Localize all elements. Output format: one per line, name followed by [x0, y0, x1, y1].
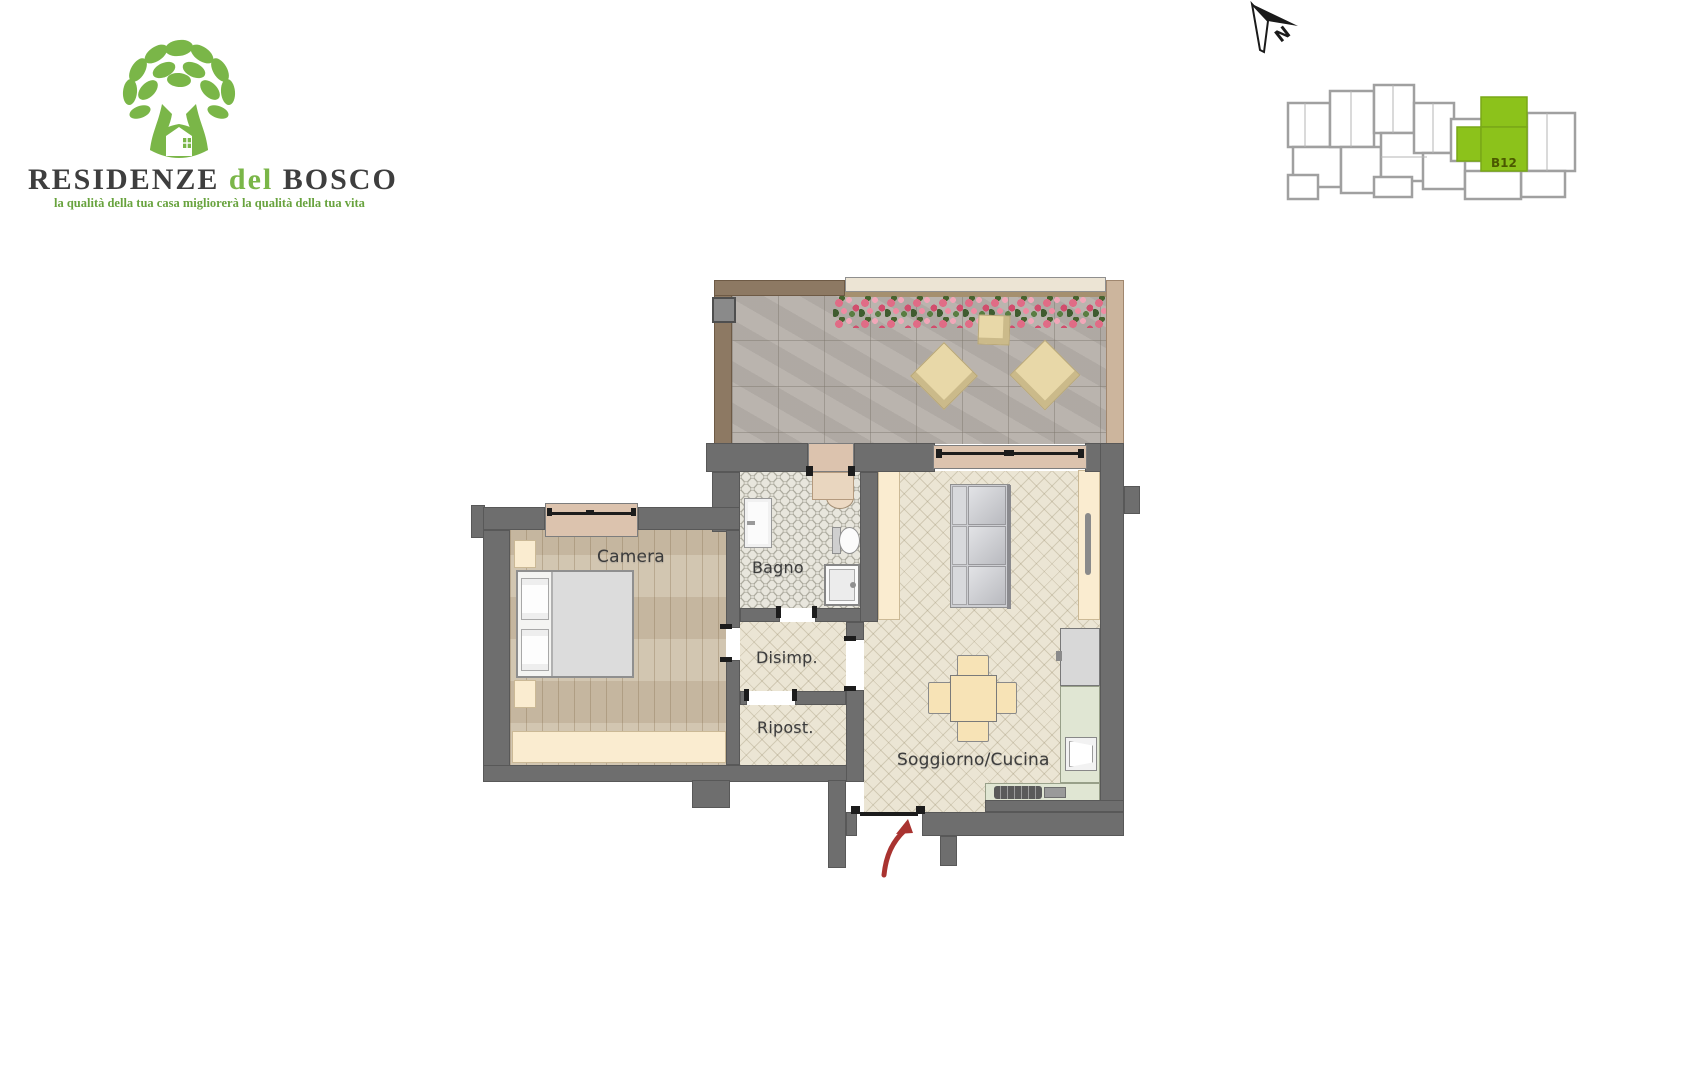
camera-window-cap-mid — [586, 510, 594, 515]
bagno-door-mark-left — [776, 606, 781, 618]
wall-hall-east-lower — [846, 690, 864, 782]
camera-door-mark-top — [720, 624, 732, 629]
living-door-mark-top — [844, 636, 856, 641]
living-window-cap-right — [1078, 449, 1084, 458]
shower-drain — [850, 582, 856, 588]
bed-blanket — [551, 572, 632, 676]
wall-bagno-south-left — [740, 608, 780, 622]
wall-bottom-step — [692, 780, 730, 808]
wall-camera-top-left — [483, 507, 545, 530]
wall-bagno-east — [860, 472, 878, 622]
wall-right — [1100, 443, 1124, 836]
dining-stool-left — [928, 682, 952, 714]
wall-entry-right-stub — [940, 836, 957, 866]
wall-hall-west-upper — [726, 530, 740, 628]
camera-wardrobe — [512, 731, 726, 763]
room-label-camera: Camera — [597, 547, 665, 567]
ripost-door-mark-right — [792, 689, 797, 701]
entrance-door-line — [860, 812, 918, 816]
sofa-back-rail — [1007, 485, 1011, 609]
bed — [516, 570, 634, 678]
site-unit-label: B12 — [1491, 156, 1517, 170]
kitchen-tall-cabinet — [1078, 470, 1100, 620]
nightstand-top — [514, 540, 536, 568]
north-arrow-icon: N — [1242, 0, 1312, 62]
shower — [824, 564, 860, 606]
cabinet-handle-bar — [1085, 513, 1091, 575]
wall-entry-left-stub — [828, 780, 846, 868]
brand-tagline: la qualità della tua casa migliorerà la … — [54, 196, 365, 211]
sofa-seat-1 — [952, 486, 967, 525]
sofa-cushion-1 — [968, 486, 1006, 525]
terrace-wall-top — [714, 280, 845, 296]
wall-camera-west — [483, 530, 510, 780]
kitchen-counter-right — [1060, 686, 1100, 783]
brand-name-part1: RESIDENZE — [28, 163, 219, 196]
room-label-ripost: Ripost. — [757, 718, 814, 737]
sofa-seat-2 — [952, 526, 967, 565]
room-label-disimp: Disimp. — [756, 648, 818, 667]
wall-camera-top-right — [638, 507, 740, 530]
terrace-pillar — [712, 297, 736, 323]
tree-logo-icon — [100, 32, 258, 164]
sofa-cushion-2 — [968, 526, 1006, 565]
fridge-handle — [1056, 651, 1062, 661]
cooktop-controls — [1044, 787, 1066, 798]
terrace-cushion-small — [977, 314, 1010, 345]
wall-kitchen-south — [985, 800, 1124, 812]
wall-living-south-right — [922, 812, 1124, 836]
cabinet-handle — [747, 521, 755, 525]
camera-door-mark-bottom — [720, 657, 732, 662]
wall-living-south-left — [846, 812, 857, 836]
soggiorno-left-column — [878, 471, 900, 620]
wall-top-left — [706, 443, 808, 472]
brand-name-part2: del — [229, 163, 273, 196]
cooktop — [994, 786, 1042, 799]
terrace-door-leaf — [812, 472, 854, 500]
camera-window-sill — [545, 503, 638, 537]
terrace-door-mark-left — [806, 466, 813, 476]
terrace-door-mark-right — [848, 466, 855, 476]
living-door-mark-bottom — [844, 686, 856, 691]
brand-name: RESIDENZE del BOSCO — [28, 163, 398, 197]
wall-hall-west-lower — [726, 660, 740, 765]
wall-right-bump — [1124, 486, 1140, 514]
fridge — [1060, 628, 1100, 686]
terrace-planter-sill — [845, 277, 1106, 292]
bed-pillow-1 — [521, 578, 549, 620]
nightstand-bottom — [514, 680, 536, 708]
living-window-cap-mid — [1004, 450, 1014, 456]
room-label-soggiorno: Soggiorno/Cucina — [897, 750, 1050, 770]
sofa — [950, 484, 1010, 608]
bathroom-cabinet — [744, 498, 772, 548]
wall-camera-south — [483, 765, 860, 782]
entrance-arrow-icon — [872, 818, 936, 878]
dining-table — [950, 675, 997, 722]
floor-plan-page: RESIDENZE del BOSCO la qualità della tua… — [0, 0, 1684, 1080]
sofa-cushion-3 — [968, 566, 1006, 605]
bagno-door-mark-right — [812, 606, 817, 618]
site-overview-map: B12 — [1285, 75, 1585, 217]
camera-window-cap-right — [631, 508, 636, 516]
wall-disimp-south-right — [795, 691, 846, 705]
kitchen-sink — [1065, 737, 1097, 771]
flower-planter — [833, 296, 1106, 328]
living-window-sill — [933, 445, 1087, 469]
terrace-wall-right — [1106, 280, 1124, 444]
camera-window-cap-left — [547, 508, 552, 516]
room-label-bagno: Bagno — [752, 558, 804, 577]
sofa-seat-3 — [952, 566, 967, 605]
living-window-cap-left — [936, 449, 942, 458]
ripost-door-mark-left — [744, 689, 749, 701]
bed-pillow-2 — [521, 629, 549, 671]
kitchen-sink-basin — [1069, 741, 1093, 767]
north-label: N — [1271, 23, 1295, 48]
toilet-bowl — [839, 527, 860, 554]
brand-logo: RESIDENZE del BOSCO la qualità della tua… — [28, 28, 328, 213]
wall-top-mid — [854, 443, 935, 472]
brand-name-part3: BOSCO — [283, 163, 398, 196]
entrance-door-mark-left — [851, 806, 860, 814]
